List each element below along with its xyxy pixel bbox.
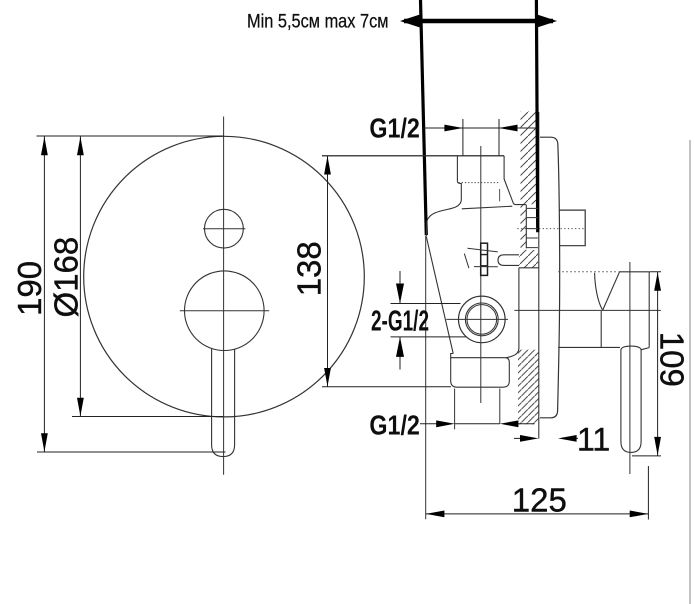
svg-text:190: 190: [11, 261, 48, 316]
svg-text:2-G1/2: 2-G1/2: [371, 306, 429, 338]
svg-text:138: 138: [291, 241, 328, 296]
svg-text:11: 11: [577, 421, 610, 457]
svg-text:Min 5,5см max 7см: Min 5,5см max 7см: [247, 10, 389, 32]
svg-text:G1/2: G1/2: [369, 112, 420, 143]
svg-text:G1/2: G1/2: [369, 410, 420, 441]
svg-text:125: 125: [512, 481, 567, 518]
svg-text:109: 109: [653, 332, 690, 387]
svg-text:Ø168: Ø168: [47, 237, 84, 318]
